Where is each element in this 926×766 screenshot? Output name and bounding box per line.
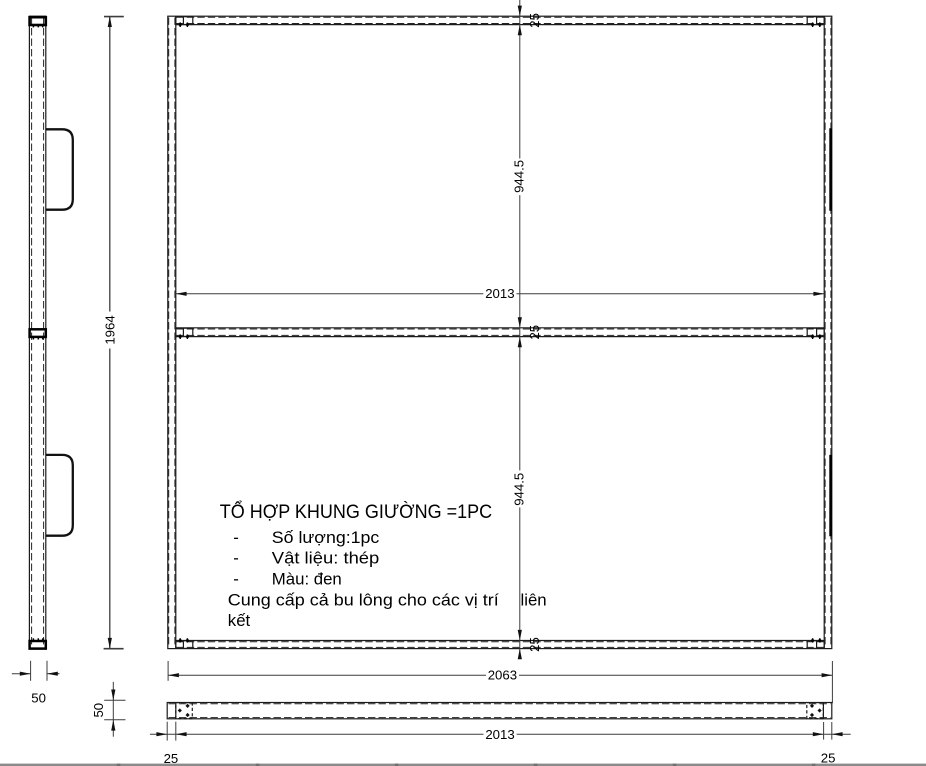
- svg-text:944.5: 944.5: [512, 160, 527, 193]
- svg-text:25: 25: [527, 13, 542, 28]
- svg-text:liên: liên: [521, 590, 547, 609]
- svg-text:25: 25: [821, 751, 836, 766]
- svg-text:25: 25: [527, 325, 542, 340]
- svg-text:-: -: [233, 528, 239, 547]
- svg-text:944.5: 944.5: [512, 473, 527, 506]
- svg-text:2013: 2013: [485, 727, 514, 742]
- svg-text:TỔ HỢP KHUNG GIƯỜNG =1PC: TỔ HỢP KHUNG GIƯỜNG =1PC: [220, 499, 492, 523]
- svg-text:Cung cấp cả bu lông cho các vị: Cung cấp cả bu lông cho các vị trí: [228, 590, 499, 609]
- svg-text:Số lượng:1pc: Số lượng:1pc: [272, 528, 380, 547]
- svg-text:Màu: đen: Màu: đen: [272, 570, 342, 589]
- svg-text:2013: 2013: [485, 286, 514, 301]
- svg-text:-: -: [233, 549, 239, 568]
- svg-text:2063: 2063: [488, 667, 517, 682]
- svg-text:-: -: [233, 570, 239, 589]
- svg-text:Vật liệu: thép: Vật liệu: thép: [272, 549, 380, 568]
- svg-text:25: 25: [527, 637, 542, 652]
- svg-text:50: 50: [31, 691, 46, 706]
- svg-text:50: 50: [91, 703, 106, 718]
- svg-text:1964: 1964: [102, 315, 117, 344]
- svg-text:kết: kết: [228, 611, 251, 630]
